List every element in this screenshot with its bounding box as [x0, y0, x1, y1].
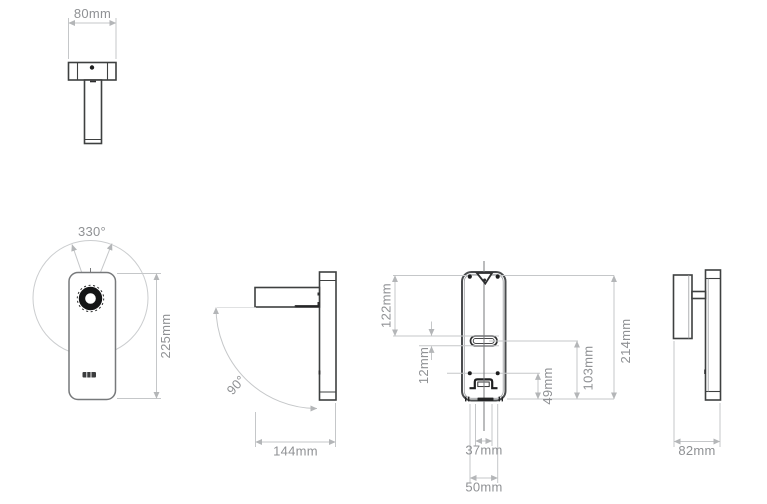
arm-outline-side — [255, 288, 320, 308]
side-view-arm-open: 90° 144mm — [216, 272, 336, 459]
brand-logo — [83, 372, 97, 378]
pivot-connector — [692, 292, 706, 299]
side-view-folded: 82mm — [674, 270, 721, 458]
top-view: 80mm — [69, 6, 117, 144]
wallplate-outline-side — [320, 272, 337, 400]
swing-angle-label: 90° — [224, 372, 249, 397]
wallplate-outline-folded — [706, 270, 721, 400]
screw-hole — [496, 275, 500, 279]
label-mount-height: 214mm — [618, 319, 633, 364]
screw-hole — [468, 275, 472, 279]
technical-drawing-sheet: 80mm 330° 225mm — [0, 0, 767, 504]
keyhole-hook-notch — [483, 279, 486, 282]
front-view: 330° 225mm — [33, 224, 173, 400]
back-view: 122mm 12mm 49mm 103mm 214mm 37mm 50mm — [379, 261, 634, 495]
plate-edge-mark — [704, 370, 706, 375]
screw-hole — [468, 371, 472, 375]
screw-hole — [496, 371, 500, 375]
lens-dot — [90, 65, 94, 69]
hinge-block — [318, 293, 321, 296]
projection-label: 144mm — [273, 444, 318, 459]
label-bracket-width: 37mm — [465, 443, 502, 458]
head-outline-folded — [674, 275, 693, 339]
cable-exit-slot — [478, 398, 494, 401]
label-hole-spacing: 50mm — [465, 480, 502, 495]
hinge-block — [318, 302, 321, 306]
label-holes-to-bottom: 49mm — [540, 367, 555, 404]
folded-depth-label: 82mm — [678, 443, 715, 458]
rotation-label: 330° — [78, 224, 106, 239]
top-width-label: 80mm — [74, 6, 111, 21]
head-outline-top — [69, 63, 117, 81]
label-slot-height: 12mm — [416, 347, 431, 384]
drawing-svg: 80mm 330° 225mm — [0, 0, 767, 504]
label-top-to-slot: 122mm — [379, 283, 394, 328]
backplate-outline-top — [85, 80, 102, 144]
label-slot-to-bottom: 103mm — [581, 346, 596, 391]
plate-edge-mark — [319, 371, 321, 375]
front-height-label: 225mm — [158, 314, 173, 359]
